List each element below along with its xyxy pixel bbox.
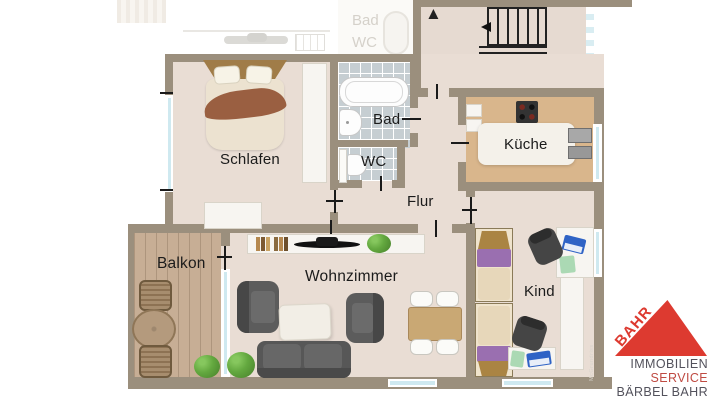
watermark-text: McGrundriss [589,343,599,381]
stairs-direction-left-icon [481,22,491,32]
wall-wc-bottom-right [392,180,405,188]
kitchen-stove [516,101,538,123]
sofa [257,341,351,378]
logo-line2: SERVICE [651,371,708,385]
faded-room-label-bad: Bad [352,12,379,29]
stairs-up-arrow-icon: ▲ [425,5,442,22]
faded-grid-box [295,34,325,51]
schlafen-window-tick-bottom [160,189,173,191]
wall-bad-wc-divider [330,140,408,147]
floor-plan: Bad WC ▲ ▼ [0,0,711,400]
wohnzimmer-bottom-window [388,379,437,387]
wall-kitchen-left-lower [458,162,466,182]
wall-kitchen-top [449,88,604,97]
balkon-door-line [224,246,226,270]
toilet-cistern [339,149,347,183]
room-label-bad: Bad [373,111,400,128]
kind-wardrobe [560,277,584,370]
wall-bad-right-lower [410,133,418,147]
dining-table [408,307,462,341]
bad-sink [339,109,362,136]
armchair-left [237,281,279,333]
wall-kind-lower [466,223,475,377]
dining-chair-2 [436,291,459,307]
faded-dresser-knob [247,33,267,42]
faded-room-label-wc: WC [352,34,377,51]
wall-interior-bottom-right [452,224,475,233]
schlafen-door-tick [326,200,343,202]
bad-door-tick [402,118,421,120]
wall-kitchen-left-upper [458,88,466,125]
kitchen-sink-counter [568,146,592,159]
dining-chair-3 [410,339,433,355]
room-label-flur: Flur [407,193,434,210]
sideboard-books [256,237,288,251]
stairs-upper-flight [487,7,547,46]
stairs-landing [479,46,547,54]
kitchen-window [593,124,602,182]
logo-line1: IMMOBILIEN [630,357,708,371]
kind-door-tick [462,209,477,211]
wall-stairwell-top [413,0,632,7]
kitchen-sink-unit [568,128,592,143]
dining-chair-4 [436,339,459,355]
kind-window [593,229,602,277]
wall-kind-upper [466,182,475,197]
bad-sink-drain [346,121,349,124]
logo: BAHR IMMOBILIEN SERVICE BÄRBEL BAHR [610,296,711,400]
dining-chair-1 [410,291,433,307]
kitchen-opening-tick [451,142,469,144]
wall-schlafen-flur-upper [330,62,338,190]
sideboard-plant [367,234,391,253]
kitchen-cabinet-1 [466,104,482,117]
bed-pillow-right [245,65,272,85]
room-label-wohnzimmer: Wohnzimmer [305,268,398,286]
balkon-plant [194,355,220,378]
balcony-left-wall [128,224,134,389]
tv-center [316,237,338,246]
kind-bottom-window [502,379,553,387]
armchair-right [346,293,384,343]
coffee-table [278,303,331,341]
schlafen-window-tick-top [160,92,173,94]
room-label-schlafen: Schlafen [220,151,280,168]
bed-pillow-left [213,65,240,85]
balkon-table [132,309,176,349]
room-label-kueche: Küche [504,136,548,153]
wohnzimmer-plant [227,352,255,378]
balkon-chair-bottom [139,345,172,378]
wall-stairwell-divider [413,0,421,97]
faded-bathtub [383,11,409,55]
room-label-wc: WC [361,153,386,170]
wall-flur-top [413,88,428,97]
logo-line3: BÄRBEL BAHR [617,385,708,399]
room-label-balkon: Balkon [157,255,206,273]
schlafen-window [165,95,173,192]
schlafen-dresser [204,202,262,229]
kind-mousepad-1 [559,255,576,273]
faded-furniture-line [183,30,330,32]
balkon-chair-top [139,280,172,311]
bathtub-inner [345,81,403,103]
flur-wohnzimmer-door-tick [435,220,437,237]
wall-interior-bottom-left [128,224,418,233]
wall-kitchen-bottom [458,182,604,191]
flur-top-door-tick [436,84,438,99]
room-label-kind: Kind [524,283,555,300]
wall-top-schlafen-bad [165,54,420,62]
wc-door-tick [380,176,382,191]
kind-bed-1 [475,228,513,302]
balkon-door-tick [217,256,232,258]
schlafen-wardrobe [302,63,327,183]
kind-mousepad-2 [510,350,525,368]
faded-strip [117,0,166,23]
